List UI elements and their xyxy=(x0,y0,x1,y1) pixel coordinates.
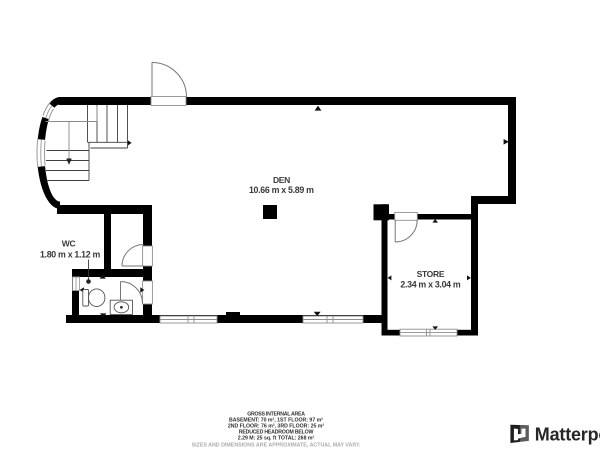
svg-text:DEN: DEN xyxy=(273,175,290,185)
svg-text:STORE: STORE xyxy=(417,269,445,279)
svg-text:SIZES AND DIMENSIONS ARE APPRO: SIZES AND DIMENSIONS ARE APPROXIMATE, AC… xyxy=(192,442,361,448)
svg-text:1.80 m x 1.12 m: 1.80 m x 1.12 m xyxy=(40,249,101,259)
svg-text:Matterport: Matterport xyxy=(535,424,600,444)
svg-text:10.66 m x 5.89 m: 10.66 m x 5.89 m xyxy=(249,185,314,195)
svg-text:WC: WC xyxy=(62,238,76,248)
svg-text:2.34 m x 3.04 m: 2.34 m x 3.04 m xyxy=(400,279,461,289)
svg-text:2.29 M: 25 sq. ft TOTAL: 268 m: 2.29 M: 25 sq. ft TOTAL: 268 m² xyxy=(238,436,315,442)
